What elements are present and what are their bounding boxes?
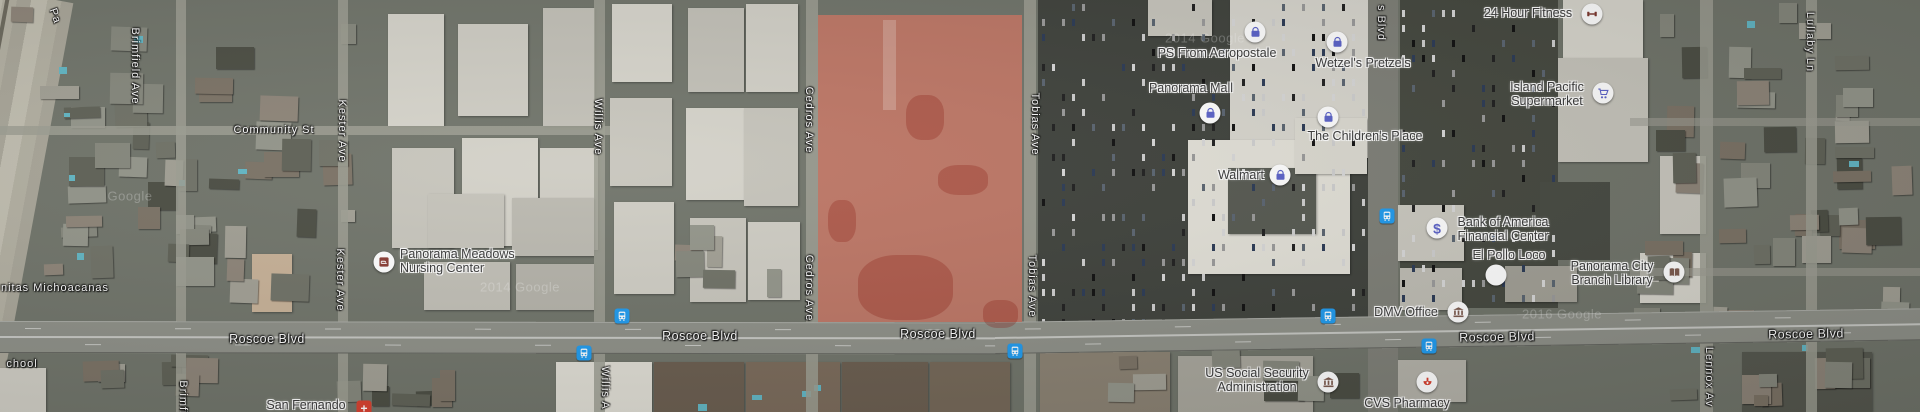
road-lane-dash — [1535, 337, 1551, 339]
map-texture — [1322, 34, 1325, 41]
map-texture — [1212, 124, 1215, 131]
map-texture — [1082, 289, 1085, 296]
transit-stop-icon[interactable] — [577, 346, 592, 361]
map-texture — [703, 269, 735, 287]
map-texture — [1452, 205, 1455, 212]
map-texture — [1412, 55, 1415, 62]
road-lane-dash — [775, 329, 791, 330]
map-texture — [1212, 244, 1215, 251]
map-texture — [1492, 55, 1495, 62]
map-texture — [1532, 295, 1535, 302]
map-texture — [1202, 19, 1205, 26]
map-texture — [1042, 79, 1045, 86]
map-texture — [1052, 229, 1055, 236]
selected-parcel-shade — [983, 300, 1018, 328]
map-texture — [1322, 229, 1325, 236]
map-texture — [1092, 169, 1095, 176]
poi-label-line: Island Pacific — [1510, 80, 1584, 94]
map-texture — [1402, 280, 1405, 287]
map-texture — [1302, 94, 1305, 101]
map-texture — [612, 4, 672, 82]
map-texture — [1472, 280, 1475, 287]
map-texture — [0, 368, 46, 412]
institution-icon[interactable] — [1318, 372, 1339, 393]
map-texture — [1172, 244, 1175, 251]
map-texture — [1212, 289, 1215, 296]
road-lane-dash — [1085, 343, 1101, 345]
transit-stop-icon[interactable] — [1422, 339, 1437, 354]
map-texture — [1192, 289, 1195, 296]
map-texture — [1082, 34, 1085, 41]
map-texture — [1402, 190, 1405, 197]
map-texture — [1522, 265, 1525, 272]
map-texture — [1835, 147, 1874, 158]
map-texture — [1482, 160, 1485, 167]
poi-label-the-childrens-place[interactable]: The Children's Place — [1308, 129, 1423, 143]
map-texture — [1332, 184, 1335, 191]
map-texture — [1552, 295, 1555, 302]
map-texture — [1452, 190, 1455, 197]
map-texture — [1322, 184, 1325, 191]
map-texture — [1512, 55, 1515, 62]
map-texture — [1042, 19, 1045, 26]
map-texture — [752, 395, 762, 400]
transit-stop-icon[interactable] — [615, 309, 630, 324]
map-texture — [1252, 109, 1255, 116]
map-texture — [1212, 184, 1215, 191]
map-texture — [1452, 70, 1455, 77]
book-icon[interactable] — [1664, 262, 1685, 283]
institution-icon[interactable] — [1448, 302, 1469, 323]
map-texture — [1312, 49, 1315, 56]
map-texture — [1402, 145, 1405, 152]
map-texture — [1422, 55, 1425, 62]
selected-parcel-shade — [828, 200, 856, 242]
map-texture — [744, 108, 798, 206]
poi-label-wetzels-pretzels[interactable]: Wetzel's Pretzels — [1315, 56, 1410, 70]
map-texture — [1402, 175, 1405, 182]
map-texture — [1442, 100, 1445, 107]
poi-label-24-hour-fitness[interactable]: 24 Hour Fitness — [1484, 6, 1572, 20]
map-texture — [1432, 160, 1435, 167]
shopping-bag-icon[interactable] — [1270, 165, 1291, 186]
map-texture — [1112, 154, 1115, 161]
poi-label-line: CVS Pharmacy — [1364, 396, 1449, 410]
map-texture — [1322, 79, 1325, 86]
map-texture — [676, 251, 705, 278]
map-texture — [1102, 244, 1105, 251]
selected-parcel-gap — [883, 20, 896, 110]
map-texture — [1062, 199, 1065, 206]
map-texture — [1412, 265, 1415, 272]
map-texture — [1072, 4, 1075, 11]
map-texture — [1773, 238, 1795, 265]
map-texture — [1542, 280, 1545, 287]
map-texture — [690, 225, 714, 250]
poi-label-bank-of-america-financial-center[interactable]: Bank of AmericaFinancial Center — [1457, 215, 1548, 243]
map-texture — [1262, 229, 1265, 236]
map-texture — [512, 198, 594, 256]
map-texture — [1352, 184, 1355, 191]
map-texture — [1723, 177, 1757, 207]
map-texture — [1482, 85, 1485, 92]
map-texture — [1492, 190, 1495, 197]
map-texture — [1462, 55, 1465, 62]
map-texture — [1540, 182, 1610, 260]
map-texture — [1132, 304, 1135, 311]
transit-stop-icon[interactable] — [1380, 209, 1395, 224]
map-texture — [1744, 68, 1780, 78]
map-texture — [1779, 3, 1797, 23]
map-texture — [1092, 289, 1095, 296]
map-texture — [1442, 160, 1445, 167]
map-texture — [1192, 154, 1195, 161]
map-texture — [1452, 40, 1455, 47]
map-texture — [1282, 4, 1285, 11]
map-texture — [362, 364, 386, 392]
map-texture — [1352, 34, 1355, 41]
shopping-cart-icon[interactable] — [1593, 83, 1614, 104]
shopping-bag-icon[interactable] — [1318, 107, 1339, 128]
map-texture — [1252, 94, 1255, 101]
map-texture — [1532, 205, 1535, 212]
map-texture — [1422, 40, 1425, 47]
map-texture — [1092, 34, 1095, 41]
map-texture — [1292, 49, 1295, 56]
street — [1630, 118, 1920, 126]
map-texture — [1322, 19, 1325, 26]
map-texture — [1072, 124, 1075, 131]
shopping-bag-icon[interactable] — [1200, 103, 1221, 124]
poi-label-island-pacific-supermarket[interactable]: Island PacificSupermarket — [1510, 80, 1584, 108]
map-texture — [1142, 154, 1145, 161]
map-texture — [1362, 229, 1365, 236]
transit-stop-icon[interactable] — [1321, 309, 1336, 324]
map-texture — [1452, 235, 1455, 242]
shopping-bag-icon[interactable] — [1327, 32, 1348, 53]
restaurant-icon[interactable] — [1486, 265, 1507, 286]
road-lane-dash — [1775, 317, 1791, 319]
map-texture — [238, 169, 247, 173]
map-texture — [1302, 199, 1305, 206]
map-texture — [1505, 266, 1577, 302]
map-texture — [1152, 64, 1155, 71]
map-texture — [1192, 94, 1195, 101]
map-texture — [1532, 115, 1535, 122]
map-texture — [1262, 244, 1265, 251]
map-texture — [1133, 374, 1166, 390]
map-texture — [1492, 160, 1495, 167]
map-texture — [1532, 130, 1535, 137]
map-texture — [282, 139, 311, 171]
map-texture — [1342, 229, 1345, 236]
selected-parcel-overlay[interactable] — [818, 15, 1022, 322]
map-texture — [1142, 214, 1145, 221]
map-texture — [930, 362, 1010, 412]
map-texture — [1282, 124, 1285, 131]
map-texture — [1422, 265, 1425, 272]
map-texture — [1072, 289, 1075, 296]
map-texture — [1062, 184, 1065, 191]
map-texture — [1272, 124, 1275, 131]
map-texture — [1172, 64, 1175, 71]
map-texture — [1132, 274, 1135, 281]
map-texture — [1472, 145, 1475, 152]
map-texture — [1833, 170, 1871, 181]
map-texture — [1542, 70, 1545, 77]
hospital-icon[interactable]: + — [357, 401, 372, 412]
gym-icon[interactable] — [1582, 4, 1603, 25]
map-texture — [1432, 295, 1435, 302]
street-label: Lennox Av — [1703, 347, 1715, 407]
map-texture — [1342, 169, 1345, 176]
map-texture — [1232, 64, 1235, 71]
map-texture — [1492, 100, 1495, 107]
map-texture — [1042, 289, 1045, 296]
road-lane-dash — [385, 345, 401, 346]
map-texture — [1342, 79, 1345, 86]
map-texture — [227, 258, 245, 280]
poi-label-us-social-security-administration[interactable]: US Social SecurityAdministration — [1205, 366, 1309, 394]
map-texture — [1102, 184, 1105, 191]
map-texture — [1052, 64, 1055, 71]
map-texture — [1452, 85, 1455, 92]
map-texture — [1202, 124, 1205, 131]
map-texture — [1362, 199, 1365, 206]
satellite-map[interactable]: $+PaBrimfield AveCommunity StKester AveK… — [0, 0, 1920, 412]
poi-label-panorama-meadows-nursing-center[interactable]: Panorama MeadowsNursing Center — [400, 247, 515, 275]
map-texture — [1673, 153, 1696, 183]
map-texture — [138, 207, 159, 229]
map-texture — [746, 4, 798, 92]
map-texture — [1212, 214, 1215, 221]
map-texture — [1252, 64, 1255, 71]
map-texture — [1482, 115, 1485, 122]
map-texture — [1482, 145, 1485, 152]
map-texture — [1152, 184, 1155, 191]
map-texture — [1482, 280, 1485, 287]
map-texture — [1042, 259, 1045, 266]
map-texture — [1152, 49, 1155, 56]
poi-label-san-fernando[interactable]: San Fernando — [266, 398, 345, 412]
map-texture — [1262, 109, 1265, 116]
map-texture — [610, 98, 672, 186]
map-texture — [1222, 244, 1225, 251]
map-texture — [1432, 70, 1435, 77]
map-texture — [1142, 289, 1145, 296]
map-texture — [1764, 127, 1797, 153]
map-texture — [1262, 94, 1265, 101]
map-texture — [1552, 280, 1555, 287]
map-texture — [1042, 274, 1045, 281]
transit-stop-icon[interactable] — [1008, 344, 1023, 359]
map-texture — [1759, 374, 1777, 387]
map-texture — [1042, 199, 1045, 206]
map-texture — [1432, 55, 1435, 62]
street-label: Willis A — [599, 366, 611, 409]
nursing-icon[interactable] — [374, 252, 395, 273]
map-texture — [1312, 229, 1315, 236]
map-texture — [1412, 40, 1415, 47]
map-texture — [1502, 190, 1505, 197]
google-watermark: 2014 Google — [1165, 31, 1245, 46]
map-texture — [1122, 214, 1125, 221]
road-lane-dash — [25, 328, 41, 329]
map-texture — [1142, 169, 1145, 176]
map-texture — [1849, 161, 1859, 167]
road-name-label: Roscoe Blvd — [662, 329, 738, 343]
map-texture — [1302, 109, 1305, 116]
map-texture — [1432, 40, 1435, 47]
map-texture — [1162, 154, 1165, 161]
road-name-label: Roscoe Blvd — [229, 332, 305, 346]
map-texture — [1753, 245, 1769, 264]
map-texture — [1412, 235, 1415, 242]
map-texture — [1222, 304, 1225, 311]
dollar-icon[interactable]: $ — [1427, 218, 1448, 239]
map-texture — [1302, 4, 1305, 11]
poi-label-cvs-pharmacy[interactable]: CVS Pharmacy — [1364, 396, 1449, 410]
map-texture — [1552, 40, 1555, 47]
street-label: Kester Ave — [336, 100, 348, 163]
poi-label-line: Financial Center — [1457, 229, 1548, 243]
map-texture — [1108, 383, 1134, 402]
map-texture — [1432, 10, 1435, 17]
poi-label-line: Walmart — [1218, 168, 1264, 182]
map-texture — [1522, 175, 1525, 182]
map-texture — [101, 370, 124, 389]
road-lane-dash — [325, 328, 341, 329]
street-label: Cedros Ave — [803, 255, 815, 322]
poi-label-ps-from-aeropostale[interactable]: PS From Aeropostale — [1158, 46, 1277, 60]
poi-label-line: 24 Hour Fitness — [1484, 6, 1572, 20]
map-texture — [209, 179, 240, 190]
map-texture — [1252, 184, 1255, 191]
poi-label-el-pollo-loco[interactable]: El Pollo Loco — [1473, 248, 1546, 262]
map-texture — [1272, 289, 1275, 296]
road-lane-dash — [835, 345, 851, 346]
map-texture — [1402, 250, 1405, 257]
map-texture — [1062, 19, 1065, 26]
pharmacy-icon[interactable] — [1417, 372, 1438, 393]
selected-parcel-shade — [906, 95, 944, 140]
map-texture — [59, 67, 67, 73]
map-texture — [1272, 139, 1275, 146]
map-texture — [1192, 4, 1195, 11]
poi-label-walmart[interactable]: Walmart — [1218, 168, 1264, 182]
map-texture — [1182, 64, 1185, 71]
map-texture — [1502, 40, 1505, 47]
map-texture — [1272, 259, 1275, 266]
map-texture — [1512, 145, 1515, 152]
map-texture — [1866, 217, 1902, 245]
map-texture — [1691, 347, 1700, 353]
map-texture — [1754, 395, 1768, 406]
map-texture — [1102, 214, 1105, 221]
road-lane-dash — [1385, 339, 1401, 341]
map-texture — [1182, 229, 1185, 236]
map-texture — [1062, 109, 1065, 116]
shopping-bag-icon[interactable] — [1245, 22, 1266, 43]
map-texture — [1232, 154, 1235, 161]
map-texture — [746, 362, 840, 412]
map-texture — [1352, 19, 1355, 26]
map-texture — [64, 113, 70, 117]
map-texture — [1222, 229, 1225, 236]
map-texture — [688, 8, 744, 92]
google-watermark: Google — [108, 189, 153, 204]
map-texture — [1232, 124, 1235, 131]
map-texture — [1072, 184, 1075, 191]
map-texture — [1192, 124, 1195, 131]
map-texture — [1112, 139, 1115, 146]
map-texture — [1352, 244, 1355, 251]
poi-label-panorama-city-branch-library[interactable]: Panorama CityBranch Library — [1571, 259, 1654, 287]
map-texture — [1322, 49, 1325, 56]
map-texture — [1352, 49, 1355, 56]
street-label: Cedros Ave — [803, 87, 815, 154]
map-texture — [1272, 244, 1275, 251]
road-median-line — [0, 336, 1000, 339]
map-texture — [260, 95, 299, 121]
map-texture — [1442, 130, 1445, 137]
map-texture — [1192, 199, 1195, 206]
street-label: Tobias Ave — [1029, 92, 1041, 155]
map-texture — [1402, 25, 1405, 32]
poi-label-line: San Fernando — [266, 398, 345, 412]
map-texture — [440, 370, 456, 400]
selected-parcel-shade — [858, 255, 953, 320]
map-texture — [1102, 34, 1105, 41]
map-texture — [225, 225, 247, 257]
map-texture — [1162, 64, 1165, 71]
road-lane-dash — [175, 328, 191, 329]
map-texture — [1192, 259, 1195, 266]
poi-label-line: Bank of America — [1457, 215, 1548, 229]
map-texture — [297, 209, 317, 238]
map-texture — [1442, 280, 1445, 287]
map-texture — [1352, 79, 1355, 86]
map-texture — [1162, 259, 1165, 266]
map-texture — [1402, 10, 1405, 17]
map-texture — [1182, 304, 1185, 311]
map-texture — [1052, 124, 1055, 131]
map-texture — [1302, 124, 1305, 131]
map-texture — [1222, 214, 1225, 221]
map-texture — [270, 273, 309, 302]
road-roscoe-blvd[interactable] — [0, 321, 1000, 354]
map-texture — [1232, 19, 1235, 26]
poi-label-dmv-office[interactable]: DMV Office — [1374, 305, 1438, 319]
map-texture — [1182, 274, 1185, 281]
map-texture — [1132, 169, 1135, 176]
map-texture — [1122, 64, 1125, 71]
map-texture — [1292, 244, 1295, 251]
map-texture — [1182, 259, 1185, 266]
map-texture — [1152, 19, 1155, 26]
poi-label-panorama-mall[interactable]: Panorama Mall — [1149, 81, 1233, 95]
poi-label-line: PS From Aeropostale — [1158, 46, 1277, 60]
map-texture — [1422, 25, 1425, 32]
map-texture — [68, 186, 106, 204]
map-texture — [1282, 19, 1285, 26]
map-texture — [1532, 70, 1535, 77]
map-texture — [63, 224, 89, 246]
map-texture — [1312, 304, 1315, 311]
map-texture — [1072, 94, 1075, 101]
map-texture — [1042, 34, 1045, 41]
map-texture — [1102, 94, 1105, 101]
